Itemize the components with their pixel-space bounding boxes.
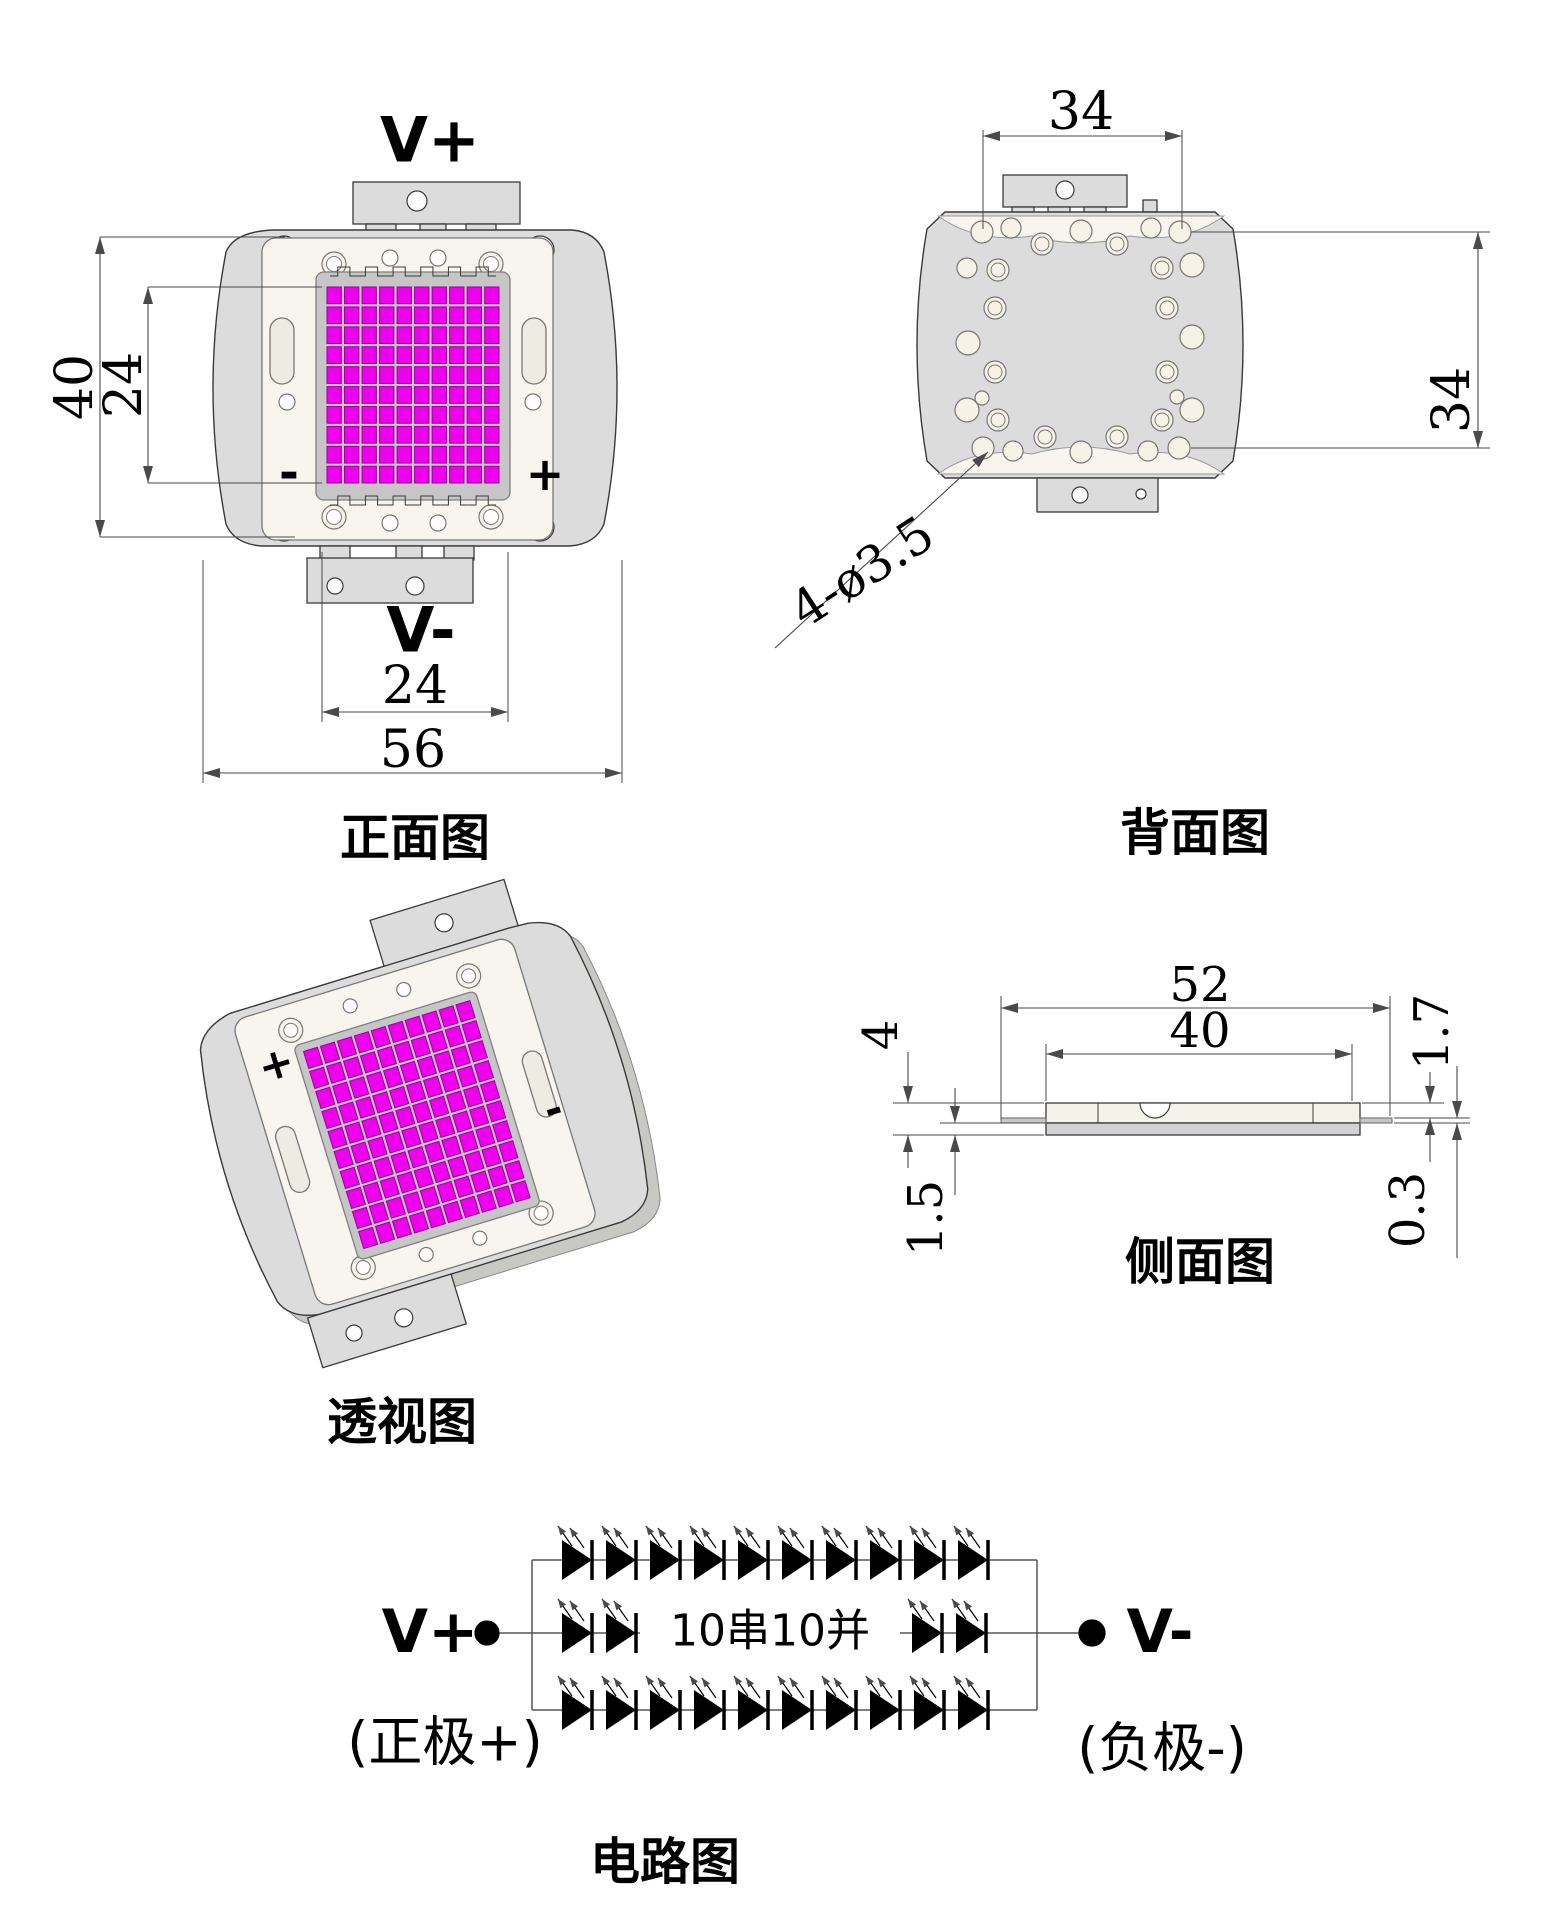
front-dim-emitting-height-24: 24: [94, 352, 154, 418]
side-dim-40: 40: [1169, 1003, 1230, 1059]
front-view-title: 正面图: [340, 809, 490, 867]
back-view: 背面图: [917, 175, 1270, 862]
drawing-canvas: -+V+V-正面图40242456背面图34344-ø3.5+-透视图侧面图52…: [0, 0, 1556, 1920]
circuit-vplus: V+: [382, 1597, 479, 1667]
back-dim-width-34: 34: [1048, 82, 1114, 142]
side-view: 侧面图: [1001, 1103, 1392, 1291]
side-dim-1-5: 1.5: [898, 1180, 954, 1256]
back-dim-mounting-holes: 4-ø3.5: [780, 505, 944, 640]
side-dim-0-3: 0.3: [1380, 1172, 1436, 1248]
circuit-negative-note: (负极-): [1077, 1717, 1247, 1780]
back-dim-height-34: 34: [1422, 367, 1482, 433]
front-plus-mark: +: [526, 447, 565, 501]
front-minus-mark: -: [279, 445, 299, 501]
side-dim-1-7: 1.7: [1404, 994, 1460, 1070]
circuit-diagram: V+V-10串10并(正极+)(负极-)电路图: [347, 1526, 1247, 1891]
circuit-configuration: 10串10并: [670, 1606, 870, 1657]
front-dim-emitting-width-24: 24: [382, 656, 448, 716]
front-terminal-vplus: V+: [380, 104, 480, 177]
back-view-title: 背面图: [1120, 804, 1270, 862]
perspective-view-title: 透视图: [327, 1393, 477, 1451]
circuit-vminus: V-: [1127, 1597, 1194, 1667]
circuit-positive-note: (正极+): [347, 1711, 542, 1774]
circuit-title: 电路图: [590, 1833, 740, 1891]
side-view-title: 侧面图: [1125, 1233, 1275, 1291]
side-dim-4: 4: [853, 1020, 909, 1051]
front-dim-width-56: 56: [380, 720, 446, 780]
perspective-view-label: 透视图: [327, 1393, 477, 1451]
perspective-view: +-: [166, 859, 690, 1378]
led-module-mechanical-drawing: -+V+V-正面图40242456背面图34344-ø3.5+-透视图侧面图52…: [0, 0, 1556, 1920]
